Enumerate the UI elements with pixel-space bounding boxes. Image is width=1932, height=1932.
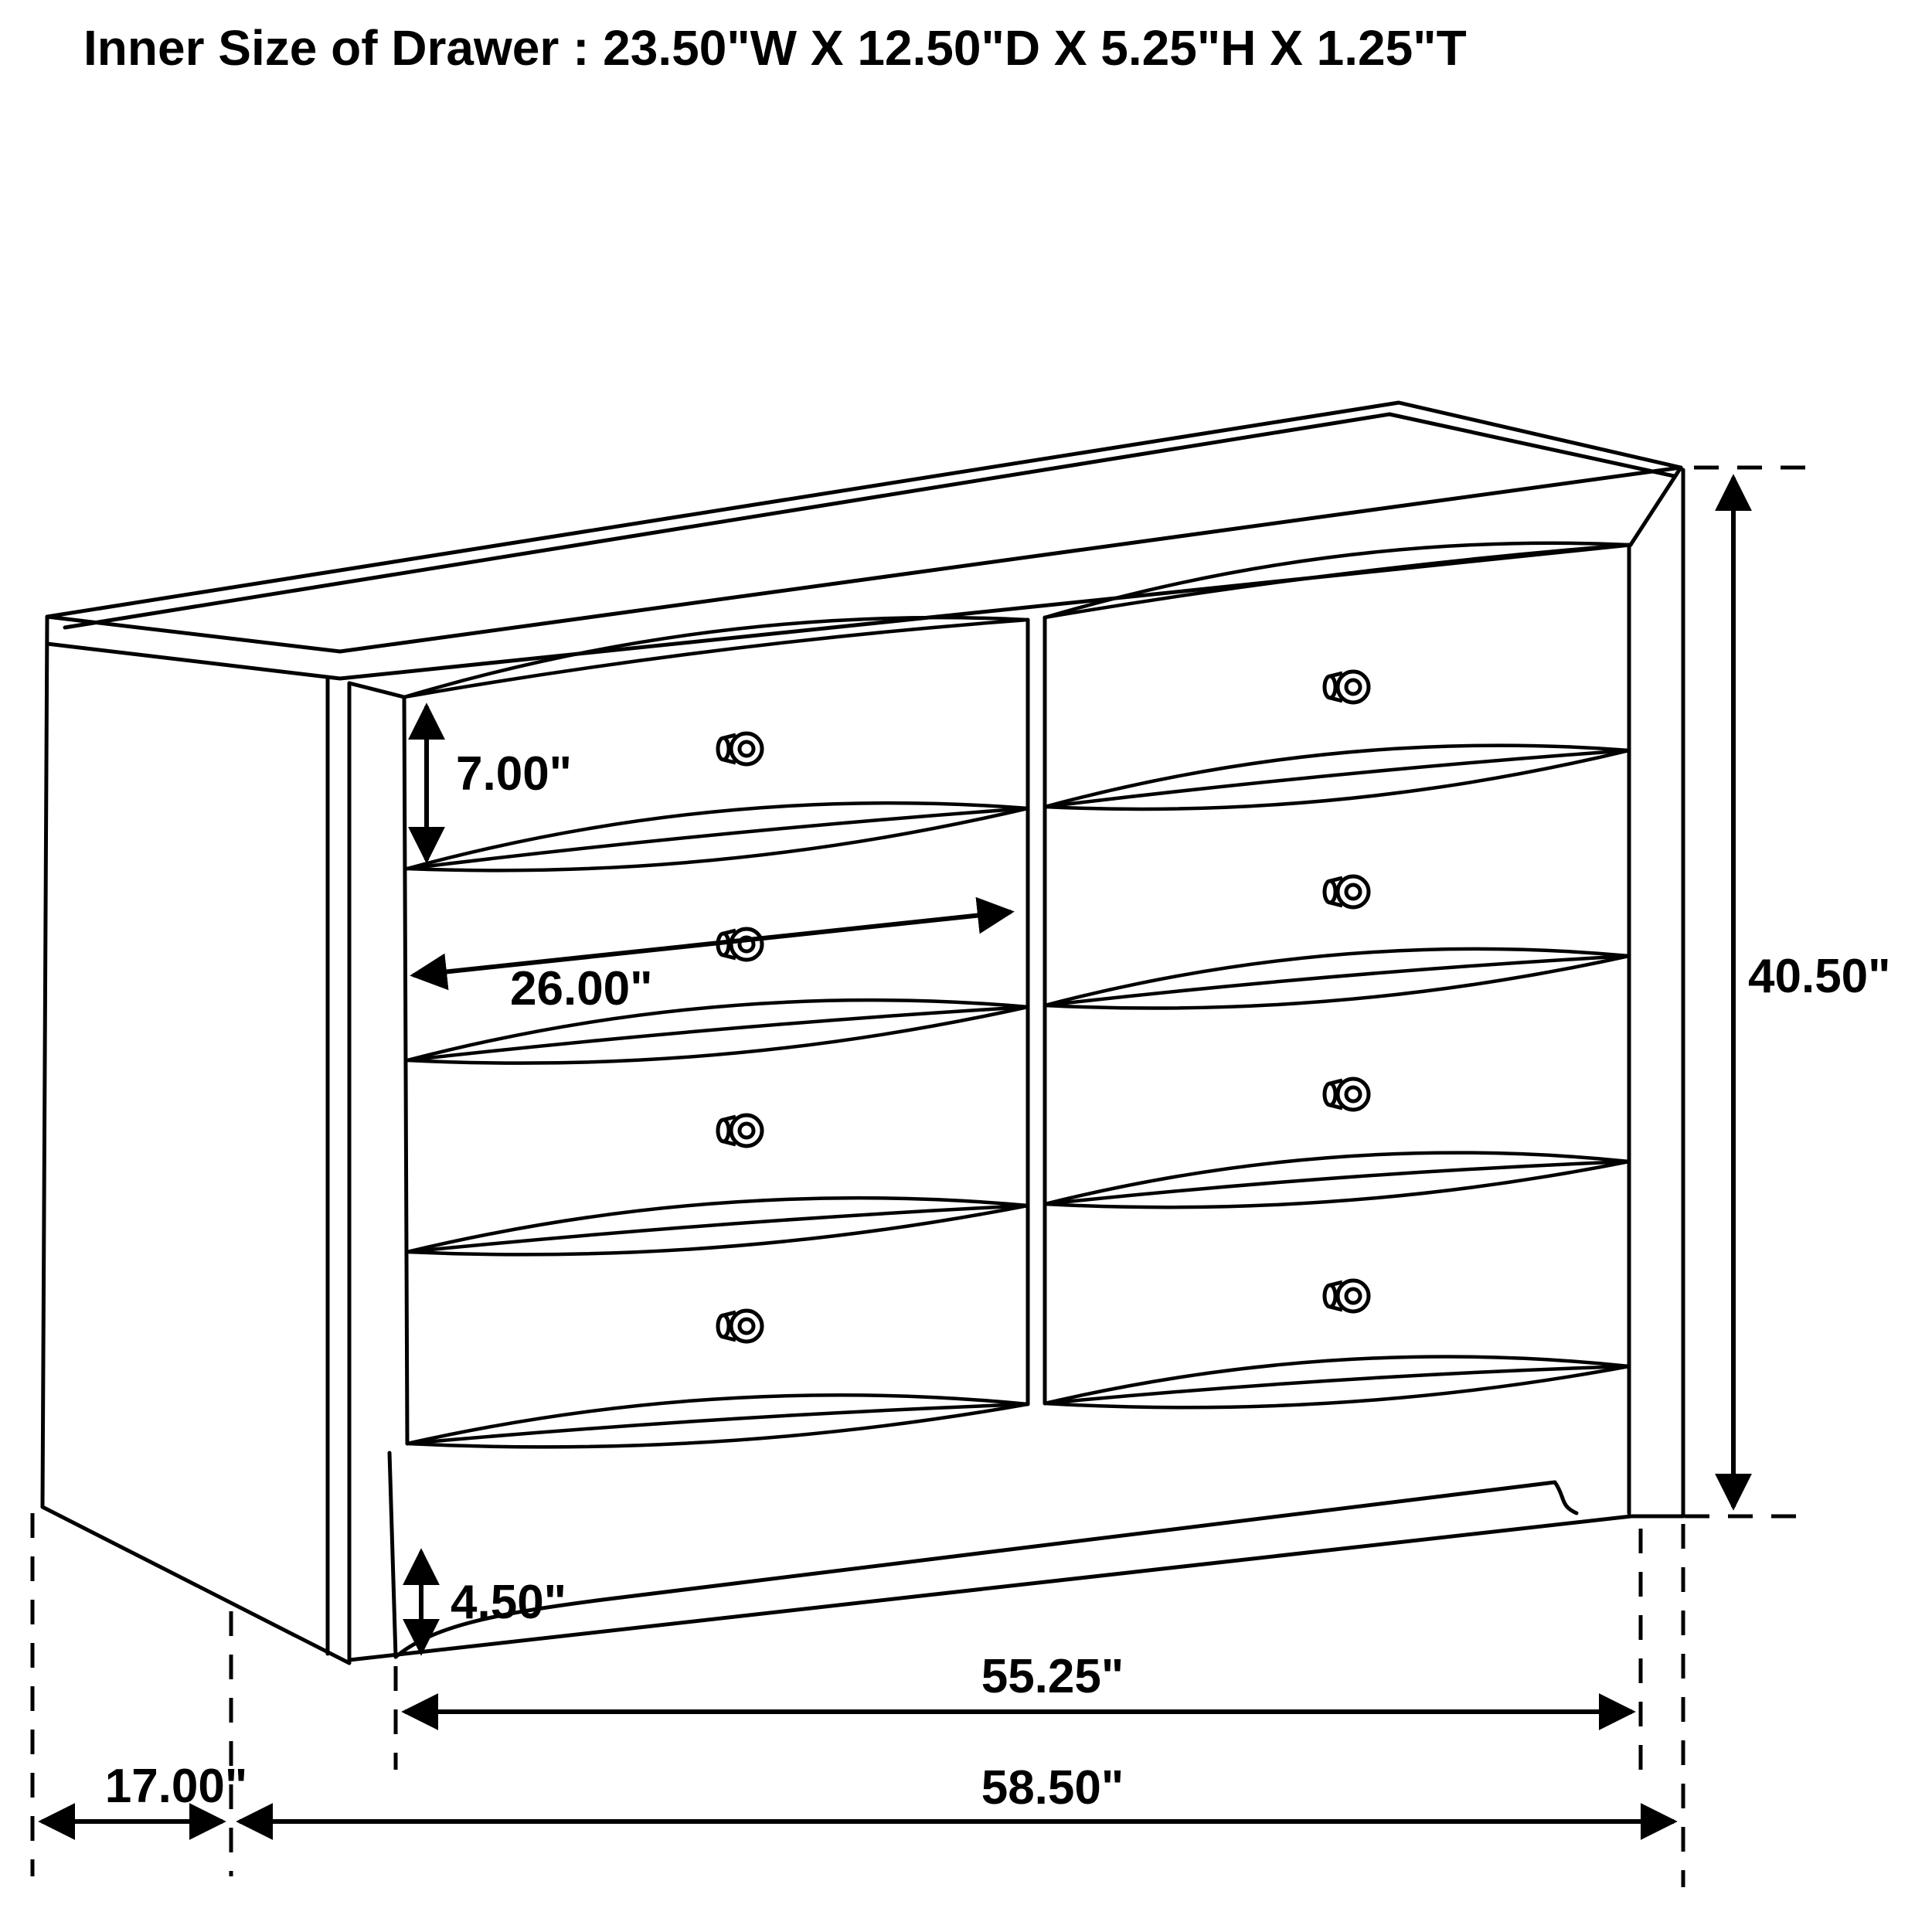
diagram-page: Inner Size of Drawer : 23.50"W X 12.50"D… (0, 0, 1932, 1932)
dresser-top (47, 403, 1681, 697)
side-panel (43, 617, 349, 1663)
base-foot-height-label: 4.50" (451, 1576, 566, 1629)
drawer-width-label: 26.00" (510, 962, 653, 1015)
front-frame (349, 470, 1683, 1660)
drawer-knob (1325, 1079, 1369, 1110)
dresser-dimension-diagram: Inner Size of Drawer : 23.50"W X 12.50"D… (0, 0, 1932, 1932)
drawer-knob (1325, 1281, 1369, 1311)
drawer-knob (718, 733, 762, 764)
drawer-knob (1325, 672, 1369, 702)
drawer-front-curves-left (404, 617, 1028, 1447)
drawer-knob (718, 1311, 762, 1342)
drawer-knob (718, 1115, 762, 1146)
drawer-knob (1325, 876, 1369, 907)
dimension-labels: 7.00" 26.00" 40.50" 4.50" 55.25" 17.00" … (105, 747, 1891, 1815)
drawer-front-height-label: 7.00" (456, 747, 572, 801)
front-feet-span-label: 55.25" (981, 1650, 1124, 1703)
side-depth-label: 17.00" (105, 1760, 248, 1813)
overall-height-label: 40.50" (1748, 950, 1891, 1003)
dimension-arrows (42, 478, 1733, 1821)
overall-width-label: 58.50" (981, 1761, 1124, 1815)
drawer-width-arrow (413, 912, 1011, 975)
title: Inner Size of Drawer : 23.50"W X 12.50"D… (83, 20, 1467, 76)
